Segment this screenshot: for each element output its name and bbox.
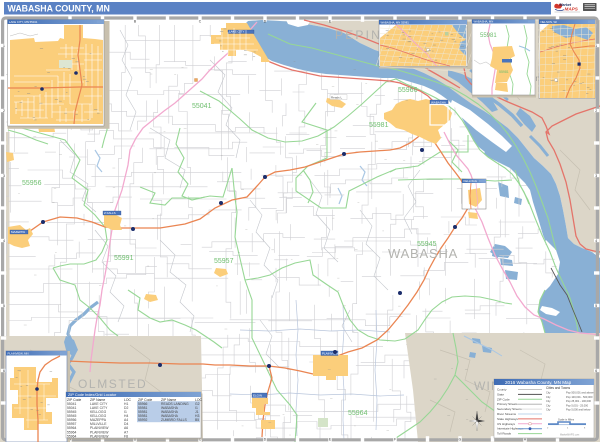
svg-text:Pop 5,000 and below: Pop 5,000 and below	[566, 408, 590, 412]
svg-text:WABASHA COUNTY, MN: WABASHA COUNTY, MN	[8, 3, 110, 13]
svg-text:4: 4	[595, 239, 597, 243]
svg-text:OLMSTED: OLMSTED	[78, 377, 147, 391]
svg-text:2: 2	[3, 109, 5, 113]
svg-text:55957: 55957	[214, 258, 234, 265]
svg-text:1: 1	[595, 44, 597, 48]
svg-text:G: G	[459, 438, 462, 442]
svg-text:ELGIN: ELGIN	[253, 394, 262, 398]
svg-text:Reads L: Reads L	[331, 96, 343, 100]
svg-text:Pop 5,001 - 25,000: Pop 5,001 - 25,000	[566, 403, 589, 407]
svg-text:City: City	[546, 395, 551, 399]
svg-text:55964: 55964	[67, 434, 77, 438]
svg-text:6: 6	[3, 369, 5, 373]
svg-text:US Highways: US Highways	[497, 422, 516, 426]
svg-text:1: 1	[3, 44, 5, 48]
svg-text:6: 6	[595, 369, 597, 373]
svg-text:State: State	[497, 392, 504, 396]
svg-text:ZIP Code: ZIP Code	[497, 397, 510, 401]
svg-text:55966: 55966	[398, 87, 418, 94]
svg-text:PEPIN: PEPIN	[335, 28, 382, 42]
svg-text:Pop 25,001 - 100,000: Pop 25,001 - 100,000	[566, 399, 592, 403]
svg-text:2016 Wabasha County, MN Map: 2016 Wabasha County, MN Map	[505, 380, 572, 385]
svg-text:55981: 55981	[480, 33, 497, 39]
svg-text:Pop 100,001 - 500,000: Pop 100,001 - 500,000	[566, 395, 593, 399]
svg-text:ZUMBRO FALLS: ZUMBRO FALLS	[161, 418, 188, 422]
svg-text:55981: 55981	[499, 70, 509, 74]
svg-text:County: County	[497, 388, 507, 392]
svg-text:PLAINVIEW: PLAINVIEW	[90, 434, 109, 438]
svg-text:B5: B5	[195, 418, 199, 422]
svg-text:NELSON, WI: NELSON, WI	[541, 20, 558, 24]
svg-text:Cities and Towns: Cities and Towns	[546, 386, 570, 390]
svg-text:WABASHA: WABASHA	[388, 246, 458, 261]
svg-text:City: City	[546, 399, 551, 403]
svg-text:State Highways: State Highways	[497, 417, 518, 421]
svg-text:MarketMAPS.com: MarketMAPS.com	[560, 434, 579, 437]
svg-text:55041: 55041	[192, 103, 212, 110]
svg-text:F8: F8	[124, 434, 128, 438]
svg-text:Scale in Miles: Scale in Miles	[558, 418, 575, 422]
svg-text:55991: 55991	[114, 255, 134, 262]
svg-text:F: F	[394, 438, 396, 442]
svg-text:LAKE CITY: LAKE CITY	[229, 30, 244, 34]
svg-text:55992: 55992	[138, 418, 148, 422]
svg-text:55981: 55981	[369, 122, 389, 129]
svg-text:2: 2	[595, 109, 597, 113]
svg-text:KELLOGG: KELLOGG	[464, 179, 477, 183]
svg-text:Toll Roads: Toll Roads	[497, 432, 512, 436]
svg-text:3: 3	[3, 174, 5, 178]
svg-text:WABASHA, MN 55981: WABASHA, MN 55981	[381, 20, 410, 24]
svg-text:City: City	[546, 408, 551, 412]
svg-text:City: City	[546, 391, 551, 395]
svg-text:Pop 500,001 and above: Pop 500,001 and above	[566, 391, 594, 395]
svg-text:Primary Streets: Primary Streets	[497, 402, 518, 406]
svg-text:55964: 55964	[348, 410, 368, 417]
svg-text:3: 3	[595, 174, 597, 178]
svg-text:PLAINVIEW, MN: PLAINVIEW, MN	[8, 351, 29, 355]
svg-text:Z FALLS: Z FALLS	[104, 211, 116, 215]
svg-text:5: 5	[3, 304, 5, 308]
svg-text:MAPS: MAPS	[565, 7, 579, 12]
svg-text:River Streams: River Streams	[497, 412, 517, 416]
svg-text:LAKE CITY, MN 55041: LAKE CITY, MN 55041	[9, 20, 38, 24]
svg-text:WABASHA, MN: WABASHA, MN	[474, 19, 494, 23]
svg-text:ZIP Code Index/Grid Locator: ZIP Code Index/Grid Locator	[68, 393, 117, 397]
svg-text:4: 4	[3, 239, 5, 243]
svg-text:City: City	[546, 403, 551, 407]
svg-text:55956: 55956	[22, 180, 42, 187]
svg-text:5: 5	[595, 304, 597, 308]
svg-text:MAZEPPA: MAZEPPA	[11, 230, 25, 234]
